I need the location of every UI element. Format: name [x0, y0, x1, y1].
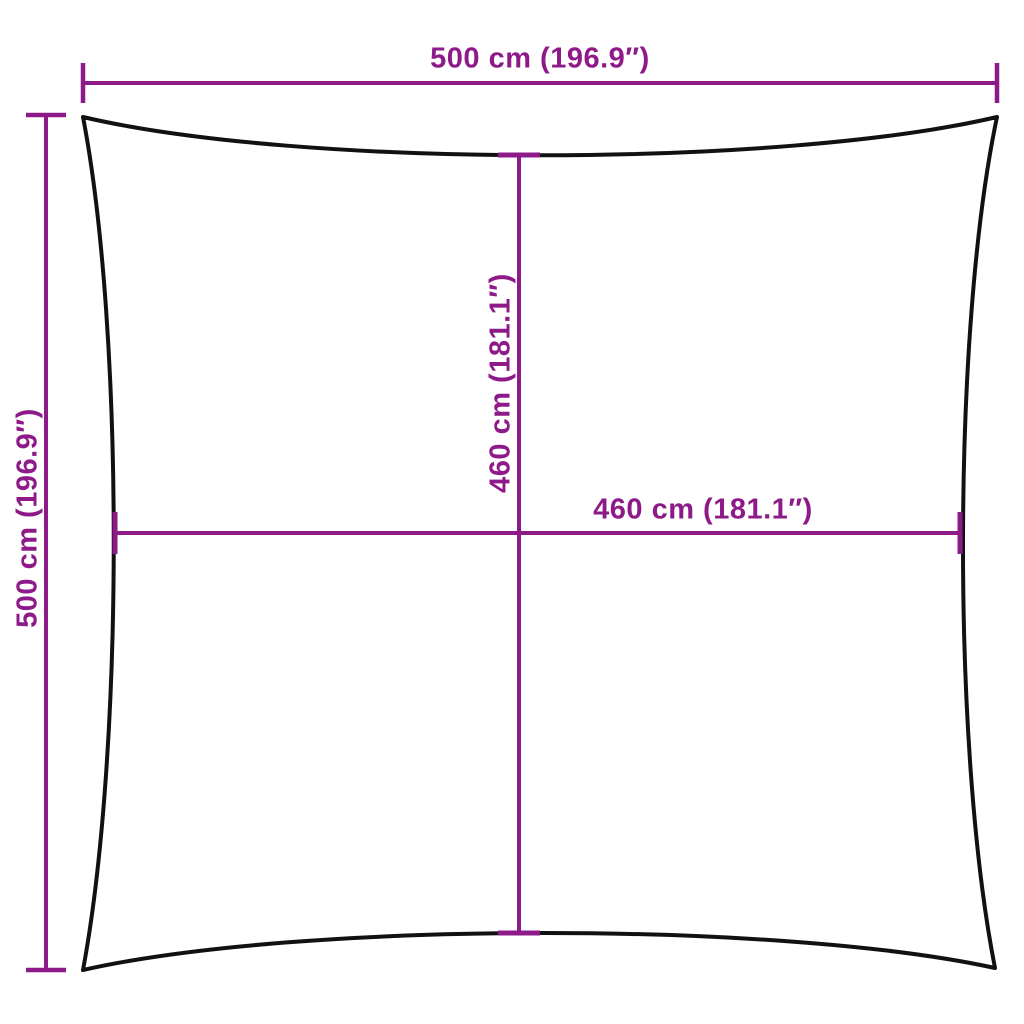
dimension-label-top-width: 500 cm (196.9″)	[430, 43, 650, 76]
dimension-label-inner-height: 460 cm (181.1″)	[485, 273, 518, 493]
diagram-canvas	[0, 0, 1024, 1024]
dimension-line-inner-vertical	[498, 155, 540, 933]
dimension-diagram: 500 cm (196.9″) 500 cm (196.9″) 460 cm (…	[0, 0, 1024, 1024]
dimension-label-inner-width: 460 cm (181.1″)	[593, 494, 813, 527]
dimension-label-left-height: 500 cm (196.9″)	[12, 408, 45, 628]
dimension-line-inner-horizontal	[115, 512, 960, 554]
sail-outline	[83, 117, 997, 970]
